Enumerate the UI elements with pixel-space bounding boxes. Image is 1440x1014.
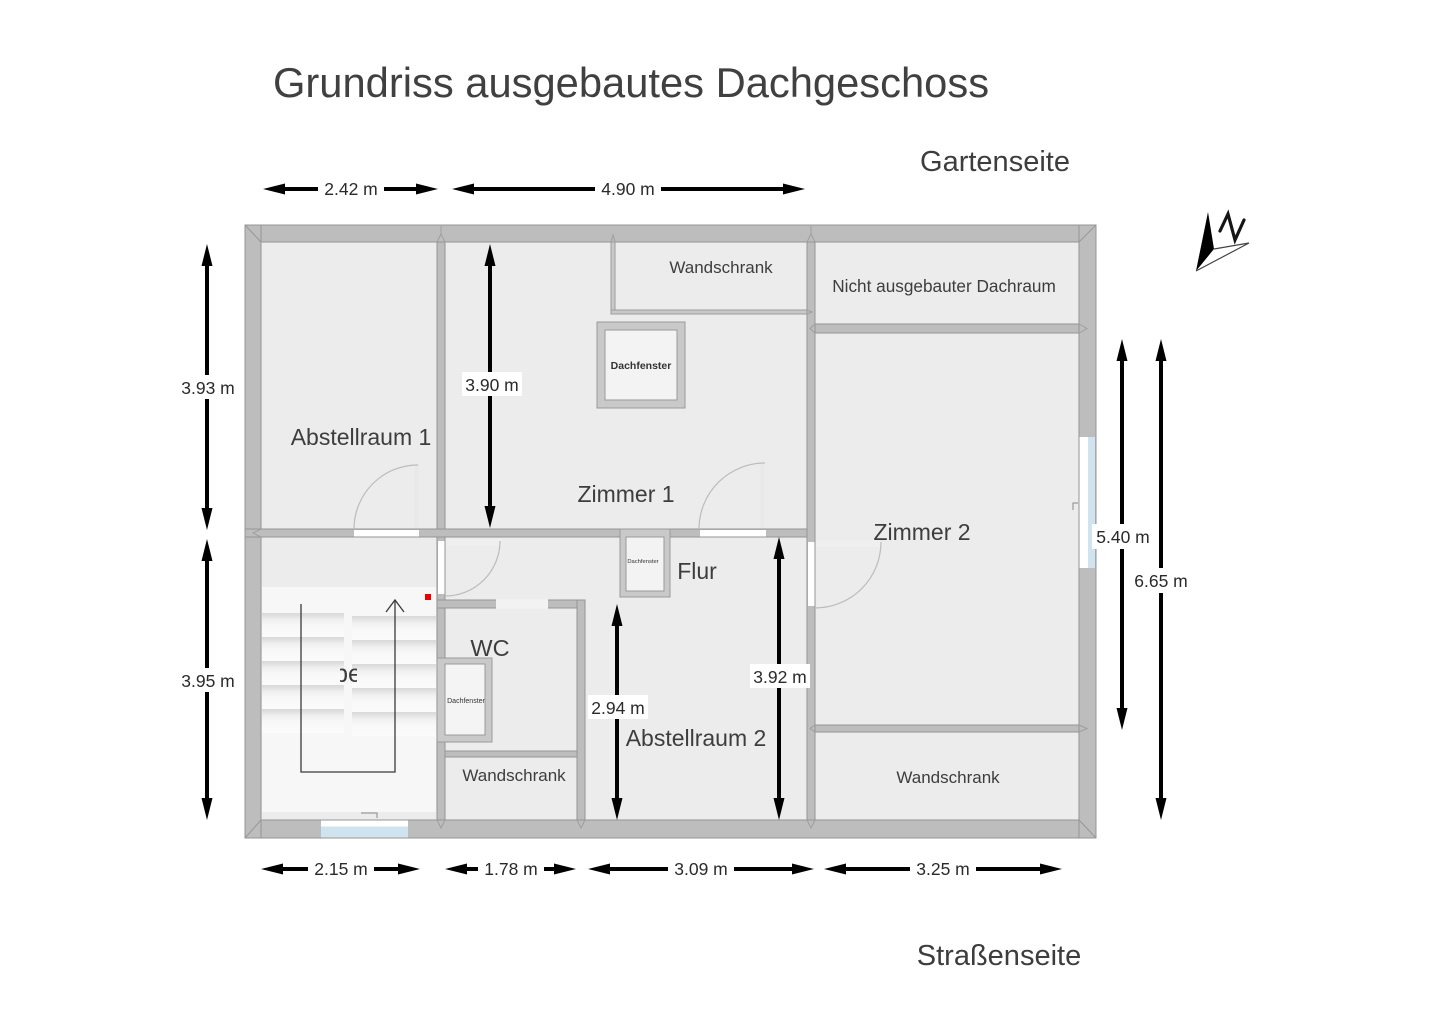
svg-text:3.92 m: 3.92 m xyxy=(753,667,807,687)
svg-text:WC: WC xyxy=(470,635,509,661)
svg-text:3.93 m: 3.93 m xyxy=(181,378,235,398)
svg-text:6.65 m: 6.65 m xyxy=(1134,571,1188,591)
svg-text:3.95 m: 3.95 m xyxy=(181,671,235,691)
svg-text:Flur: Flur xyxy=(677,558,717,584)
svg-text:2.15 m: 2.15 m xyxy=(314,859,368,879)
svg-text:Zimmer 2: Zimmer 2 xyxy=(873,519,970,545)
svg-text:Abstellraum 1: Abstellraum 1 xyxy=(291,424,432,450)
svg-text:Abstellraum 2: Abstellraum 2 xyxy=(626,725,767,751)
svg-text:Nicht ausgebauter Dachraum: Nicht ausgebauter Dachraum xyxy=(832,276,1056,296)
svg-text:4.90 m: 4.90 m xyxy=(601,179,655,199)
svg-text:Wandschrank: Wandschrank xyxy=(669,258,773,277)
svg-text:2.42 m: 2.42 m xyxy=(324,179,378,199)
svg-text:Zimmer 1: Zimmer 1 xyxy=(577,481,674,507)
svg-text:Gartenseite: Gartenseite xyxy=(920,146,1070,178)
svg-text:Dachfenster: Dachfenster xyxy=(611,360,672,372)
svg-text:Grundriss ausgebautes Dachgesc: Grundriss ausgebautes Dachgeschoss xyxy=(273,59,989,106)
svg-text:1.78 m: 1.78 m xyxy=(484,859,538,879)
svg-text:Straßenseite: Straßenseite xyxy=(917,940,1081,972)
svg-text:Dachfenster: Dachfenster xyxy=(447,698,485,705)
svg-text:Wandschrank: Wandschrank xyxy=(462,766,566,785)
svg-text:3.09 m: 3.09 m xyxy=(674,859,728,879)
svg-text:3.90 m: 3.90 m xyxy=(465,375,519,395)
svg-text:5.40 m: 5.40 m xyxy=(1096,527,1150,547)
svg-text:3.25 m: 3.25 m xyxy=(916,859,970,879)
svg-text:2.94 m: 2.94 m xyxy=(591,698,645,718)
svg-text:Wandschrank: Wandschrank xyxy=(896,768,1000,787)
svg-text:Dachfenster: Dachfenster xyxy=(627,559,658,565)
